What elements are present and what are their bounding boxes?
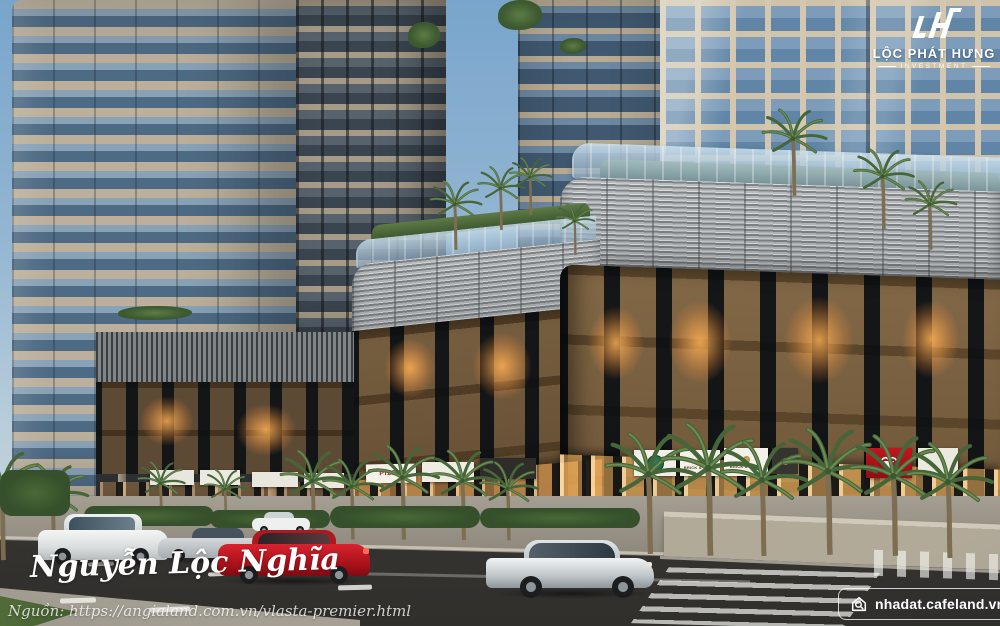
developer-name: LỘC PHÁT HƯNG — [868, 46, 1000, 61]
source-attribution: Nguồn: https://angialand.com.vn/vlasta-p… — [8, 602, 411, 620]
palm-tree — [478, 167, 524, 230]
site-watermark-badge: nhadat.cafeland.vn — [838, 588, 1000, 620]
palm-tree — [908, 444, 992, 558]
palm-tree — [763, 110, 826, 196]
loc-phat-hung-monogram-icon — [902, 8, 966, 46]
palm-tree — [855, 150, 914, 230]
architectural-render-scene: PIZZA BRICK & GRILL BRICK & GRILL — [0, 0, 1000, 626]
palm-tree — [557, 204, 595, 255]
car-wheel — [612, 576, 634, 598]
car-taillight — [363, 548, 369, 554]
palm-tree — [606, 434, 694, 554]
rule-line — [972, 66, 990, 67]
palm-tree — [431, 181, 481, 249]
developer-logo: LỘC PHÁT HƯNG INVESTMENT — [868, 8, 1000, 70]
car-window — [69, 517, 135, 530]
street-hedge — [480, 508, 640, 528]
palm-tree — [722, 442, 806, 556]
site-watermark-label: nhadat.cafeland.vn — [875, 596, 1000, 612]
car-headlight — [646, 562, 652, 567]
palm-tree — [480, 463, 537, 541]
street-hedge — [0, 470, 70, 516]
home-search-icon — [850, 595, 868, 613]
developer-subtitle-row: INVESTMENT — [868, 63, 1000, 70]
palm-tree — [906, 181, 956, 249]
car-silver-coupe — [486, 540, 656, 598]
street-hedge — [330, 506, 480, 528]
developer-subtitle: INVESTMENT — [901, 63, 968, 70]
car-wheel — [520, 576, 542, 598]
rule-line — [878, 66, 896, 67]
